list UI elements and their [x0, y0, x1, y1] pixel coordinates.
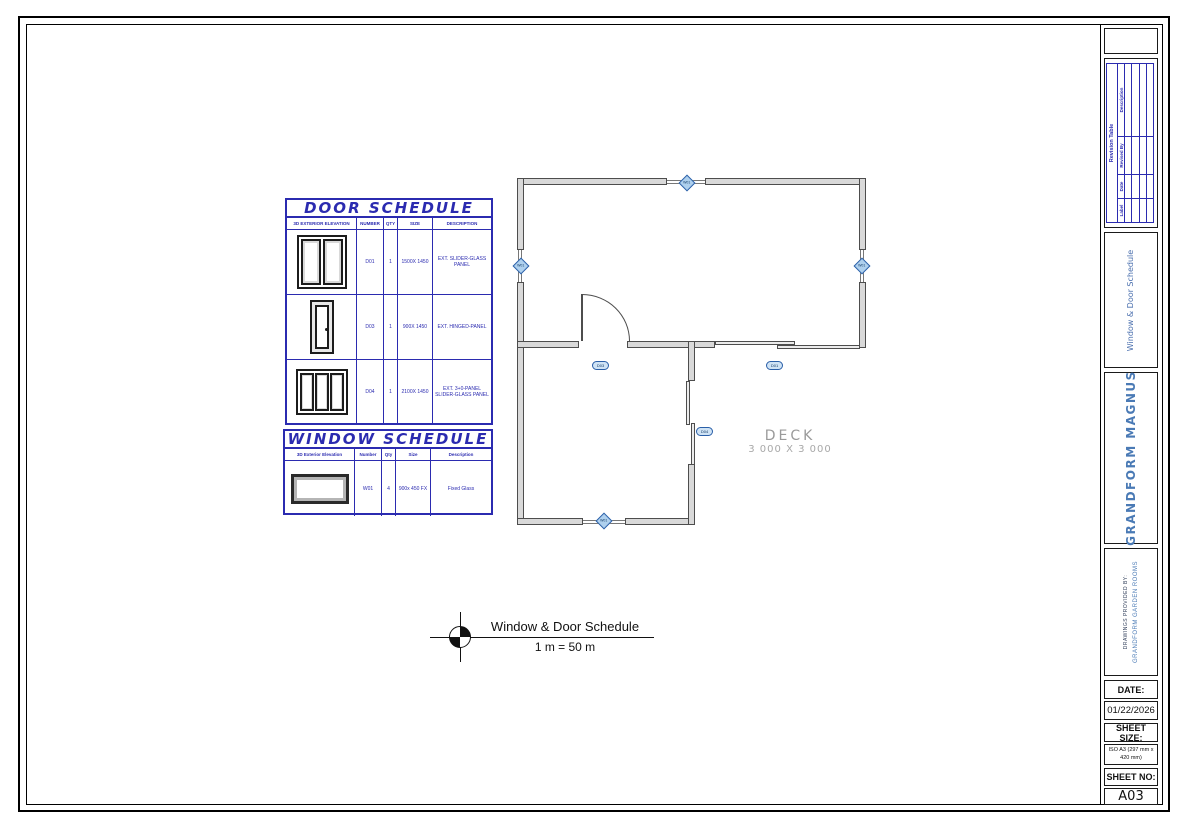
revision-cell [1147, 64, 1153, 136]
door-panel [315, 373, 329, 411]
door-number-cell: D01 [356, 230, 383, 294]
revision-empty-row [1140, 64, 1147, 222]
door-size-cell: 1500X 1450 [397, 230, 432, 294]
door-number-cell: D04 [356, 360, 383, 424]
window-marker: W01 [596, 513, 613, 530]
revision-cell [1132, 198, 1138, 222]
window-marker: W01 [854, 258, 871, 275]
window-schedule-header-cell: 3D Exterior Elevation [285, 449, 354, 460]
drawing-title-callout: Window & Door Schedule 1 m = 50 m [425, 612, 655, 664]
wall-segment [517, 178, 524, 250]
window-schedule-title: WINDOW SCHEDULE [285, 431, 491, 449]
door-panel [300, 373, 314, 411]
door-schedule-header-cell: DESCRIPTION [432, 218, 491, 229]
door-knob [325, 328, 328, 331]
revision-table-header-row: Label Date Revised By Description [1118, 64, 1125, 222]
sliding-door-panel [777, 345, 860, 349]
revision-header-cell: Revised By [1118, 136, 1124, 174]
wall-segment [688, 464, 695, 525]
window-schedule-table: WINDOW SCHEDULE 3D Exterior Elevation Nu… [283, 429, 493, 515]
revision-cell [1147, 198, 1153, 222]
table-row: D03 1 900X 1450 EXT. HINGED-PANEL [287, 294, 491, 359]
titleblock-provided-by-section: DRAWINGS PROVIDED BY: GRANDFORM GARDEN R… [1104, 548, 1158, 676]
revision-cell [1125, 174, 1131, 198]
sheet-no-label: SHEET NO: [1106, 772, 1155, 782]
door-thumbnail-cell [287, 230, 356, 294]
door-schedule-header-cell: QTY [383, 218, 397, 229]
window-number-cell: W01 [354, 461, 381, 516]
window-marker: W01 [513, 258, 530, 275]
wall-segment [688, 341, 695, 381]
provided-by-company: GRANDFORM GARDEN ROOMS [1133, 561, 1139, 663]
revision-cell [1125, 136, 1131, 174]
deck-dimensions: 3 000 X 3 000 [715, 444, 865, 455]
revision-cell [1125, 198, 1131, 222]
sheet-size-value-box: ISO A3 (297 mm x 420 mm) [1104, 744, 1158, 765]
drawing-title-text: Window & Door Schedule [475, 619, 655, 634]
wall-segment [859, 178, 866, 250]
window-size-cell: 900x 450 FX [395, 461, 430, 516]
drawing-scale-text: 1 m = 50 m [475, 640, 655, 654]
revision-cell [1125, 64, 1131, 136]
revision-table-title: Revision Table [1107, 64, 1118, 222]
revision-header-cell: Date [1118, 174, 1124, 198]
date-label: DATE: [1118, 685, 1145, 695]
revision-cell [1140, 198, 1146, 222]
sheet-no-value-box: A03 [1104, 788, 1158, 805]
sheet-size-label: SHEET SIZE: [1105, 723, 1157, 743]
table-row: W01 4 900x 450 FX Fixed Glass [285, 460, 491, 516]
wall-segment [517, 282, 524, 525]
wall-segment [627, 341, 715, 348]
door-panel [323, 239, 343, 285]
revision-cell [1147, 136, 1153, 174]
door-number-cell: D03 [356, 295, 383, 359]
floor-plan: W01 W01 W01 W01 D03 D01 D04 DECK 3 000 X… [515, 176, 875, 534]
titleblock-company-section: GRANDFORM MAGNUS [1104, 372, 1158, 544]
window-schedule-header-row: 3D Exterior Elevation Number Qty Size De… [285, 449, 491, 460]
datum-quadrant-circle-icon [449, 626, 471, 648]
wall-segment [705, 178, 866, 185]
window-marker: W01 [679, 175, 696, 192]
door-schedule-title: DOOR SCHEDULE [287, 200, 491, 218]
door-description-cell: EXT. 3+0-PANEL SLIDER-GLASS PANEL [432, 360, 491, 424]
sheet-no-value: A03 [1118, 789, 1143, 804]
door-marker: D01 [766, 361, 783, 370]
date-value-box: 01/22/2026 [1104, 701, 1158, 720]
door-qty-cell: 1 [383, 230, 397, 294]
door-description-cell: EXT. SLIDER-GLASS PANEL [432, 230, 491, 294]
revision-cell [1147, 174, 1153, 198]
door-schedule-header-row: 3D EXTERIOR ELEVATION NUMBER QTY SIZE DE… [287, 218, 491, 229]
titleblock-spacer-box [1104, 28, 1158, 54]
table-row: D01 1 1500X 1450 EXT. SLIDER-GLASS PANEL [287, 229, 491, 294]
revision-cell [1140, 174, 1146, 198]
door-schedule-header-cell: SIZE [397, 218, 432, 229]
door-description-cell: EXT. HINGED-PANEL [432, 295, 491, 359]
revision-empty-row [1132, 64, 1139, 222]
window-schedule-header-cell: Qty [381, 449, 395, 460]
door-marker: D03 [592, 361, 609, 370]
wall-segment [517, 178, 667, 185]
wall-segment [859, 282, 866, 348]
door-swing-arc [582, 294, 630, 341]
window-qty-cell: 4 [381, 461, 395, 516]
wall-segment [625, 518, 695, 525]
door-panel [301, 239, 321, 285]
sheet-name-vertical-text: Window & Door Schedule [1127, 249, 1136, 350]
revision-cell [1132, 136, 1138, 174]
provided-by-label: DRAWINGS PROVIDED BY: [1123, 561, 1129, 663]
window-schedule-header-cell: Description [430, 449, 491, 460]
door-single-hinged-icon [310, 300, 334, 354]
titleblock-separator-line [1100, 24, 1101, 805]
sliding-door-panel [691, 423, 695, 465]
window-thumbnail-cell [285, 461, 354, 516]
window-marker-label: W01 [683, 181, 690, 185]
door-size-cell: 2100X 1450 [397, 360, 432, 424]
door-schedule-header-cell: 3D EXTERIOR ELEVATION [287, 218, 356, 229]
revision-cell [1132, 64, 1138, 136]
sheet-size-value: ISO A3 (297 mm x 420 mm) [1106, 747, 1156, 761]
window-fixed-icon [291, 474, 349, 504]
titleblock-sheet-name-section: Window & Door Schedule [1104, 232, 1158, 368]
door-marker: D04 [696, 427, 713, 436]
door-schedule-header-cell: NUMBER [356, 218, 383, 229]
door-size-cell: 900X 1450 [397, 295, 432, 359]
provided-by-stack: DRAWINGS PROVIDED BY: GRANDFORM GARDEN R… [1123, 561, 1139, 663]
window-marker-label: W01 [517, 264, 524, 268]
revision-header-cell: Label [1118, 198, 1124, 222]
table-row: D04 1 2100X 1450 EXT. 3+0-PANEL SLIDER-G… [287, 359, 491, 424]
door-2-panel-slider-icon [297, 235, 347, 289]
door-panel [330, 373, 344, 411]
wall-segment [517, 341, 579, 348]
sliding-door-panel [686, 381, 690, 425]
window-schedule-header-cell: Number [354, 449, 381, 460]
sheet-size-label-box: SHEET SIZE: [1104, 723, 1158, 742]
door-3-panel-slider-icon [296, 369, 348, 415]
door-panel [315, 305, 329, 349]
door-schedule-table: DOOR SCHEDULE 3D EXTERIOR ELEVATION NUMB… [285, 198, 493, 425]
wall-segment [517, 518, 583, 525]
window-marker-label: W01 [600, 519, 607, 523]
revision-header-cell: Description [1118, 64, 1124, 136]
window-description-cell: Fixed Glass [430, 461, 491, 516]
deck-label: DECK 3 000 X 3 000 [715, 428, 865, 455]
revision-cell [1140, 136, 1146, 174]
sheet-no-label-box: SHEET NO: [1104, 768, 1158, 786]
drawing-sheet: DOOR SCHEDULE 3D EXTERIOR ELEVATION NUMB… [0, 0, 1188, 828]
revision-table: Revision Table Label Date Revised By Des… [1106, 63, 1154, 223]
revision-table-section: Revision Table Label Date Revised By Des… [1104, 58, 1158, 228]
door-thumbnail-cell [287, 295, 356, 359]
door-thumbnail-cell [287, 360, 356, 424]
date-value: 01/22/2026 [1107, 705, 1155, 716]
company-vertical-text: GRANDFORM MAGNUS [1124, 370, 1138, 546]
revision-empty-row [1147, 64, 1153, 222]
window-marker-label: W01 [858, 264, 865, 268]
door-qty-cell: 1 [383, 295, 397, 359]
revision-empty-row [1125, 64, 1132, 222]
date-label-box: DATE: [1104, 680, 1158, 699]
window-schedule-header-cell: Size [395, 449, 430, 460]
revision-cell [1140, 64, 1146, 136]
revision-cell [1132, 174, 1138, 198]
deck-name: DECK [715, 428, 865, 444]
door-qty-cell: 1 [383, 360, 397, 424]
